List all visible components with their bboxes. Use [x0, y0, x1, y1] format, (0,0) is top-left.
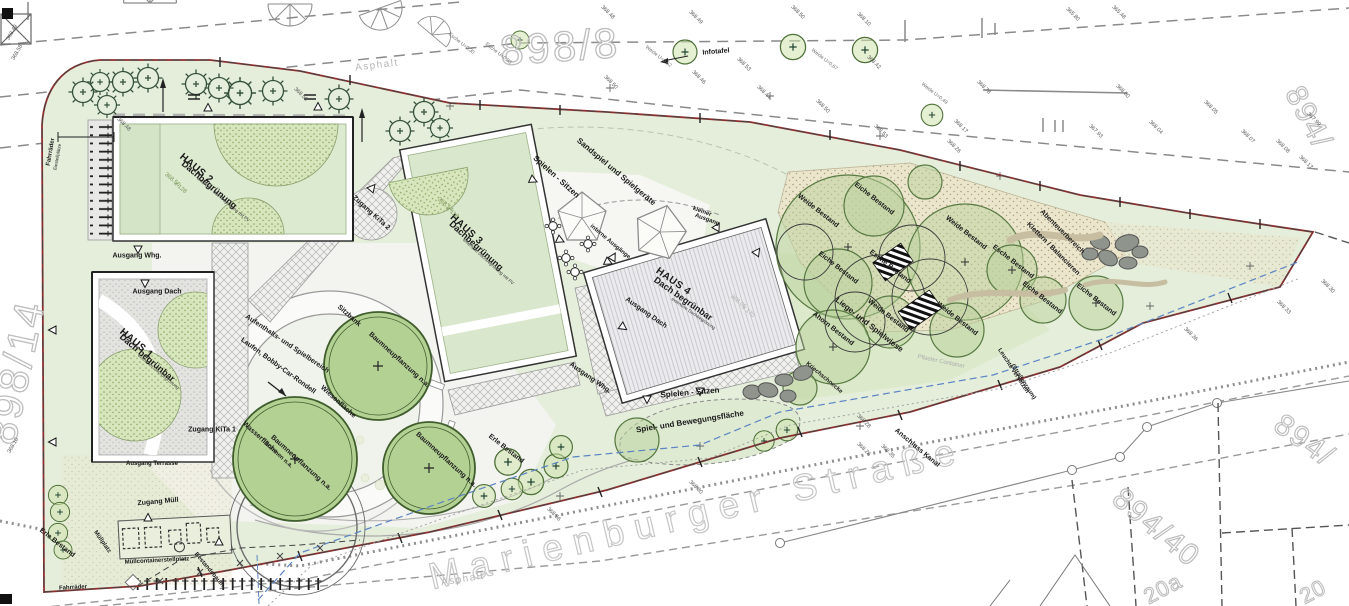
- site-plan: 898/8898/14894/894/894/4020a20Marienburg…: [0, 0, 1349, 606]
- haus-2: [88, 117, 353, 241]
- waste-area: [118, 515, 232, 559]
- bike-racks-bottom-icon: [136, 576, 324, 592]
- haus-1: [89, 272, 234, 462]
- bike-racks-icon: [90, 124, 112, 238]
- neighbor-roof-lines: [990, 555, 1110, 606]
- site-plan-canvas: [0, 0, 1349, 606]
- street-trees: [124, 0, 459, 47]
